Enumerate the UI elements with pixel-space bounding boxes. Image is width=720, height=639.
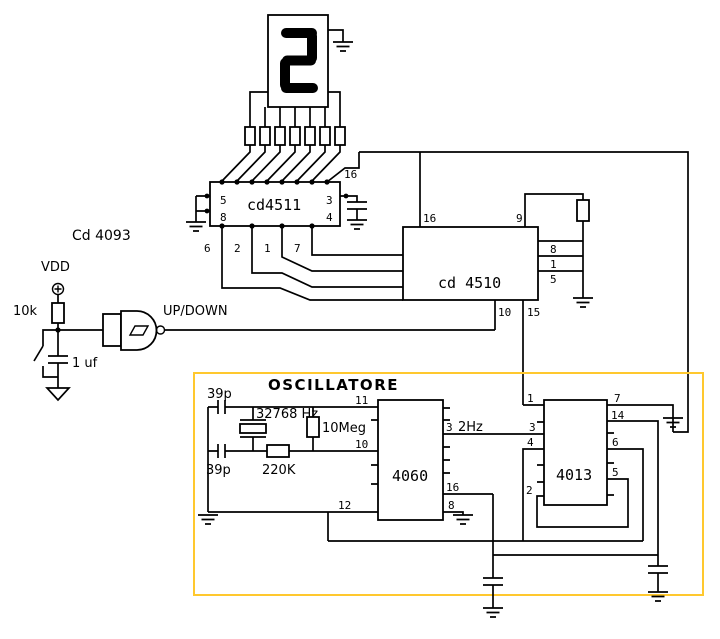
ic4060-pin12-wire [208,512,378,541]
series-res-label: 220K [262,463,296,478]
ic4060-label: 4060 [392,467,428,485]
segment-resistors [245,127,345,145]
feedback-res-label: 10Meg [322,421,366,436]
ground-triangle-icon [47,388,69,400]
nand-gate-icon [103,311,165,350]
pin-label: 7 [294,242,301,255]
pin-label: 3 [446,421,453,434]
seven-segment-display [222,15,353,181]
pin-label: 11 [355,394,368,407]
schematic-page: cd4511 5 8 3 4 16 6 2 1 7 [0,0,720,639]
feedback-resistor [307,417,319,437]
pin-label: 3 [529,421,536,434]
pin-label: 1 [527,392,534,405]
pin-label: 5 [550,273,557,286]
ground-icon [186,222,206,231]
debounce-capacitor [48,330,68,388]
bottom-cap-right [648,566,668,592]
ic4013-body [544,400,607,505]
ground-icon [483,608,503,617]
pull-resistor [577,200,589,221]
pin-label: 6 [612,436,619,449]
pushbutton-switch[interactable] [34,330,58,377]
cd4511-cap-wire [340,196,367,220]
pin-label: 7 [614,392,621,405]
cd4510-label: cd 4510 [438,274,501,292]
inverter-bubble-icon [157,326,165,334]
pin-label: 1 [550,258,557,271]
pin-label: 2 [234,242,241,255]
gate-ic-label: Cd 4093 [72,228,131,244]
pin-label: 1 [264,242,271,255]
pin-label: 8 [220,211,227,224]
oscillator-title: OSCILLATORE [268,376,399,394]
pin-label: 5 [220,194,227,207]
decoder-cd4511: cd4511 5 8 3 4 16 6 2 1 7 [186,152,367,255]
clock-freq-label: 2Hz [458,420,483,435]
ground-icon [453,515,473,524]
pin-label: 12 [338,499,351,512]
ground-icon [333,42,353,51]
pin-label: 5 [612,466,619,479]
pin-label: 14 [611,409,625,422]
pin-label: 3 [326,194,333,207]
pin-label: 16 [423,212,436,225]
pin-label: 10 [355,438,368,451]
ic4013-label: 4013 [556,466,592,484]
vdd-symbol-icon [53,284,64,295]
oscillator-block: OSCILLATORE 39p 39p 220K 32768 Hz 10Meg … [194,373,703,595]
cd4510-preset-wires [538,221,583,298]
pin-label: 8 [448,499,455,512]
pin-label: 10 [498,306,511,319]
series-resistor [267,445,289,457]
updown-label: UP/DOWN [163,304,228,319]
osc-bottom-line [208,444,378,458]
bottom-cap-left [483,494,503,608]
segment-bus-wires [222,145,340,181]
bcd-bus-wires [222,226,403,300]
cap-bottom-label: 39p [206,463,231,478]
cd4511-label: cd4511 [247,196,301,214]
pin-label: 8 [550,243,557,256]
cap-top-label: 39p [207,387,232,402]
display-ground-wire [328,30,343,42]
flipflop-4013: 4013 1 3 4 2 7 14 6 5 [523,392,683,566]
ground-icon [347,220,367,229]
cd4510-pin9-wire [525,194,583,227]
pin-label: 4 [326,211,333,224]
schematic-canvas: cd4511 5 8 3 4 16 6 2 1 7 [0,0,720,639]
pin-label: 9 [516,212,523,225]
pin-label: 16 [344,168,357,181]
ground-icon [198,515,218,524]
pin-label: 4 [527,436,534,449]
pullup-label: 10k [13,304,38,319]
ic4060-body [378,400,443,520]
pin-label: 6 [204,242,211,255]
pin-label: 15 [527,306,540,319]
pin-label: 16 [446,481,459,494]
vdd-label: VDD [41,260,70,275]
ground-icon [573,298,593,307]
pin-label: 2 [526,484,533,497]
gate-input-wire [58,323,103,330]
ground-icon [648,592,668,601]
pullup-resistor [52,303,64,323]
debounce-cap-label: 1 uf [72,356,98,371]
